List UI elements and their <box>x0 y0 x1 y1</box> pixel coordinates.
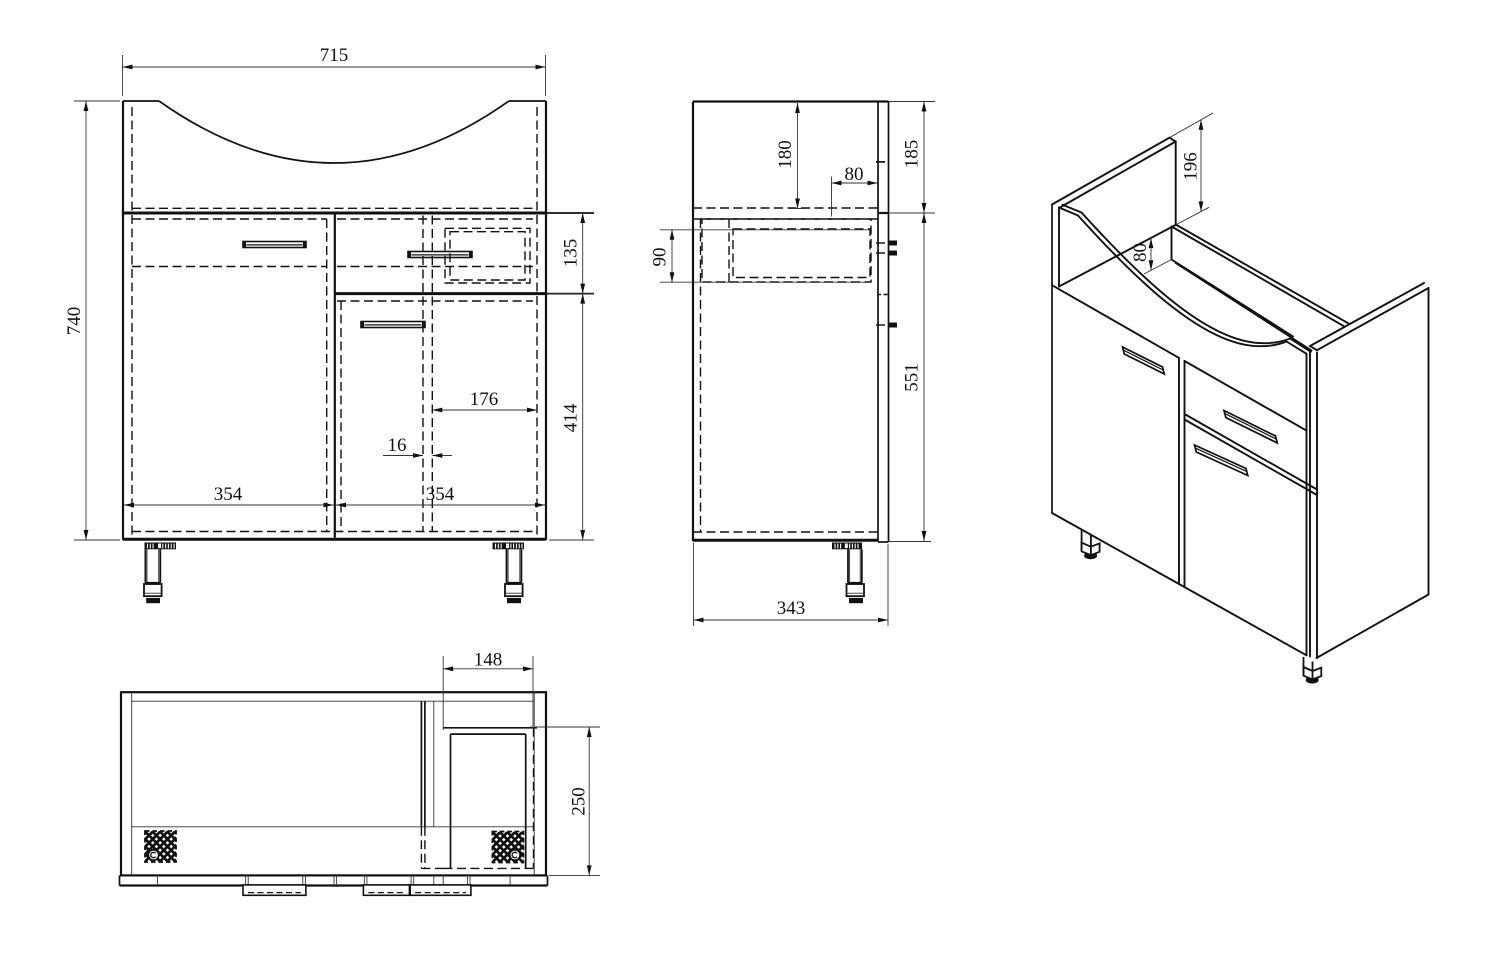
svg-text:148: 148 <box>474 650 503 671</box>
svg-text:551: 551 <box>902 363 923 392</box>
svg-text:354: 354 <box>214 484 243 505</box>
svg-text:343: 343 <box>777 598 806 619</box>
svg-text:180: 180 <box>775 140 796 169</box>
svg-text:354: 354 <box>426 484 455 505</box>
svg-text:16: 16 <box>388 435 407 456</box>
svg-text:715: 715 <box>320 45 349 66</box>
svg-text:80: 80 <box>845 164 864 185</box>
svg-text:414: 414 <box>561 403 582 432</box>
svg-text:135: 135 <box>561 239 582 268</box>
svg-text:80: 80 <box>1130 243 1151 262</box>
svg-text:250: 250 <box>569 787 590 816</box>
svg-text:185: 185 <box>902 140 923 169</box>
svg-text:740: 740 <box>64 307 85 336</box>
svg-text:90: 90 <box>650 248 671 267</box>
svg-text:176: 176 <box>470 389 499 410</box>
svg-text:196: 196 <box>1181 152 1202 181</box>
